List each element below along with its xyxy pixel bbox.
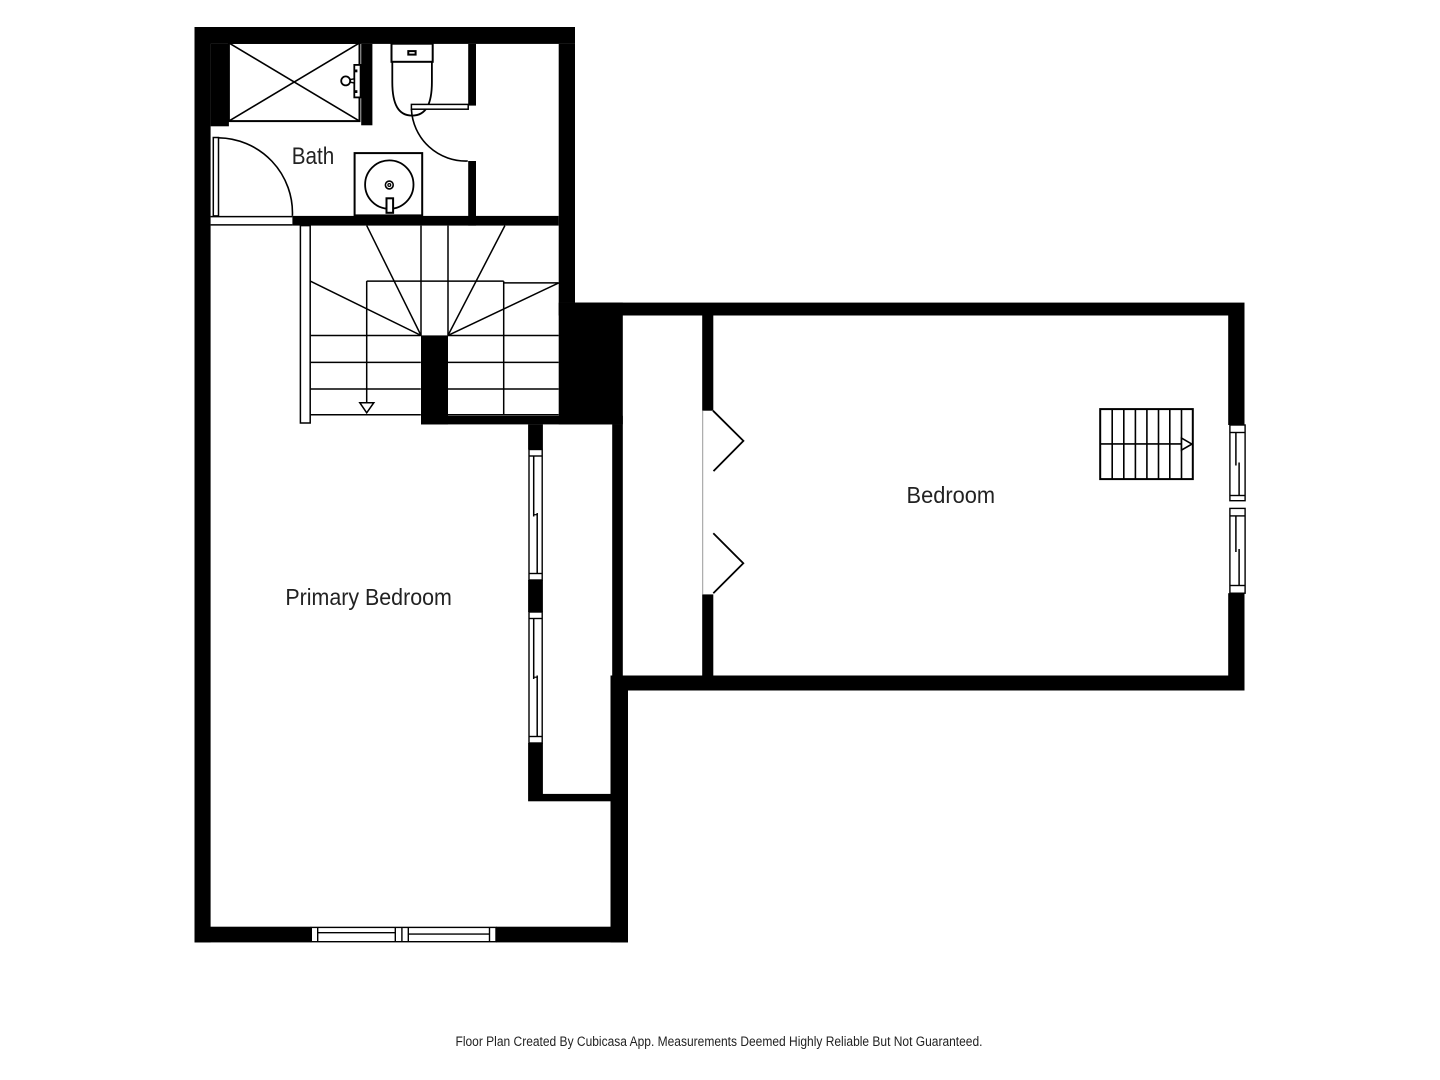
svg-text:Bath: Bath: [292, 143, 335, 170]
svg-text:Bedroom: Bedroom: [907, 482, 996, 508]
svg-text:Floor Plan Created By Cubicasa: Floor Plan Created By Cubicasa App. Meas…: [456, 1034, 983, 1049]
svg-text:Primary Bedroom: Primary Bedroom: [285, 584, 452, 610]
